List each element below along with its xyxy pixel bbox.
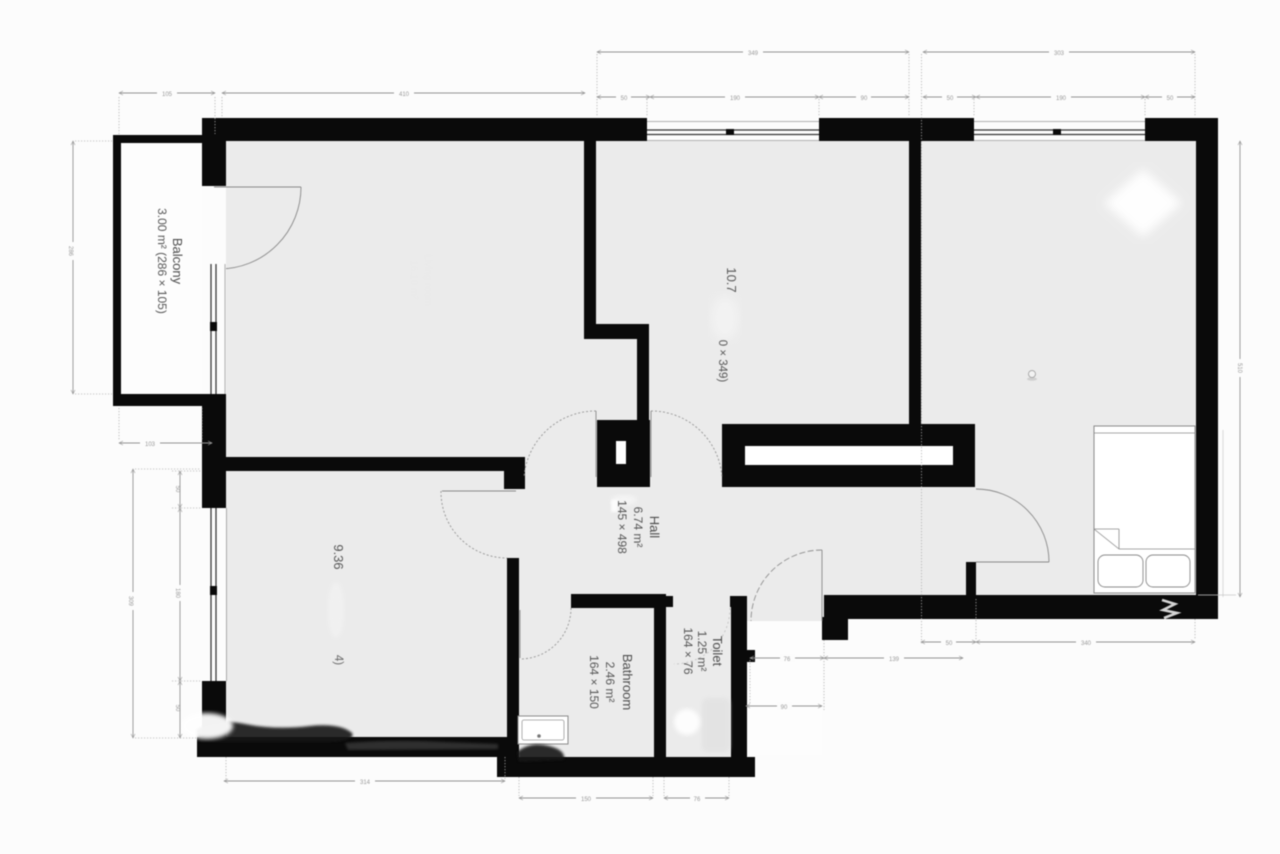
svg-text:314: 314 [360,780,371,786]
svg-text:76: 76 [784,657,791,663]
svg-text:286: 286 [67,246,73,257]
svg-text:150: 150 [581,797,592,803]
svg-text:Balcony: Balcony [170,238,185,285]
svg-text:139: 139 [889,657,900,663]
svg-text:164 × 150: 164 × 150 [587,655,601,709]
svg-text:6.74 m²: 6.74 m² [631,507,645,548]
svg-text:1.25 m²: 1.25 m² [695,631,709,672]
svg-text:3.00 m² (286 × 105): 3.00 m² (286 × 105) [155,208,169,314]
svg-text:4): 4) [332,655,344,665]
svg-text:190: 190 [730,96,741,102]
svg-text:349: 349 [748,51,759,57]
svg-text:340: 340 [1081,641,1092,647]
svg-text:303: 303 [1054,51,1065,57]
svg-text:90: 90 [781,705,788,711]
svg-text:76: 76 [694,797,701,803]
svg-text:410: 410 [399,92,410,98]
svg-text:180: 180 [174,588,180,599]
svg-text:190: 190 [1056,96,1067,102]
svg-text:9.36: 9.36 [331,544,346,569]
svg-text:Bathroom: Bathroom [620,654,635,710]
svg-text:50: 50 [1167,96,1174,102]
svg-text:50: 50 [946,641,953,647]
svg-text:90: 90 [861,96,868,102]
svg-text:309: 309 [127,596,133,607]
svg-text:145 × 498: 145 × 498 [615,500,629,554]
svg-text:Hall: Hall [647,516,662,539]
svg-text:510: 510 [1236,363,1242,374]
svg-text:50: 50 [621,96,628,102]
svg-text:0 × 349): 0 × 349) [716,340,728,383]
svg-text:164 × 76: 164 × 76 [681,627,695,674]
svg-text:50: 50 [174,486,180,493]
svg-text:Living room: Living room [422,254,433,306]
svg-text:103: 103 [145,442,156,448]
svg-text:16.10 m²: 16.10 m² [408,260,419,300]
svg-text:50: 50 [947,96,954,102]
svg-text:Toilet: Toilet [710,636,725,667]
svg-text:2.46 m²: 2.46 m² [603,662,617,703]
svg-text:10.7: 10.7 [724,267,739,292]
svg-text:50: 50 [174,705,180,712]
svg-text:105: 105 [162,92,173,98]
